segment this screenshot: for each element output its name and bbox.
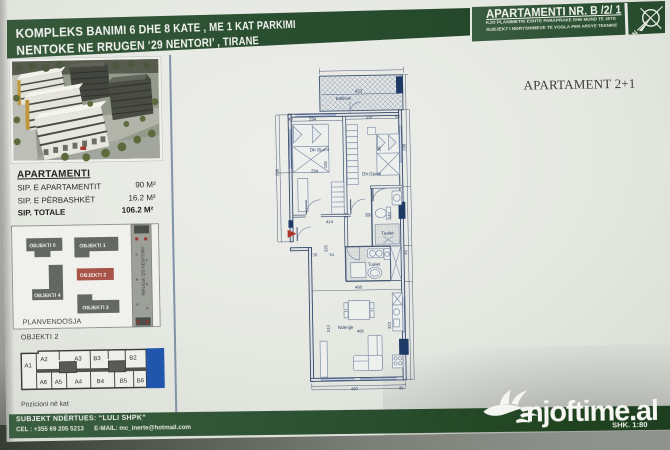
svg-text:SHK. 1:80: SHK. 1:80 xyxy=(612,420,648,429)
